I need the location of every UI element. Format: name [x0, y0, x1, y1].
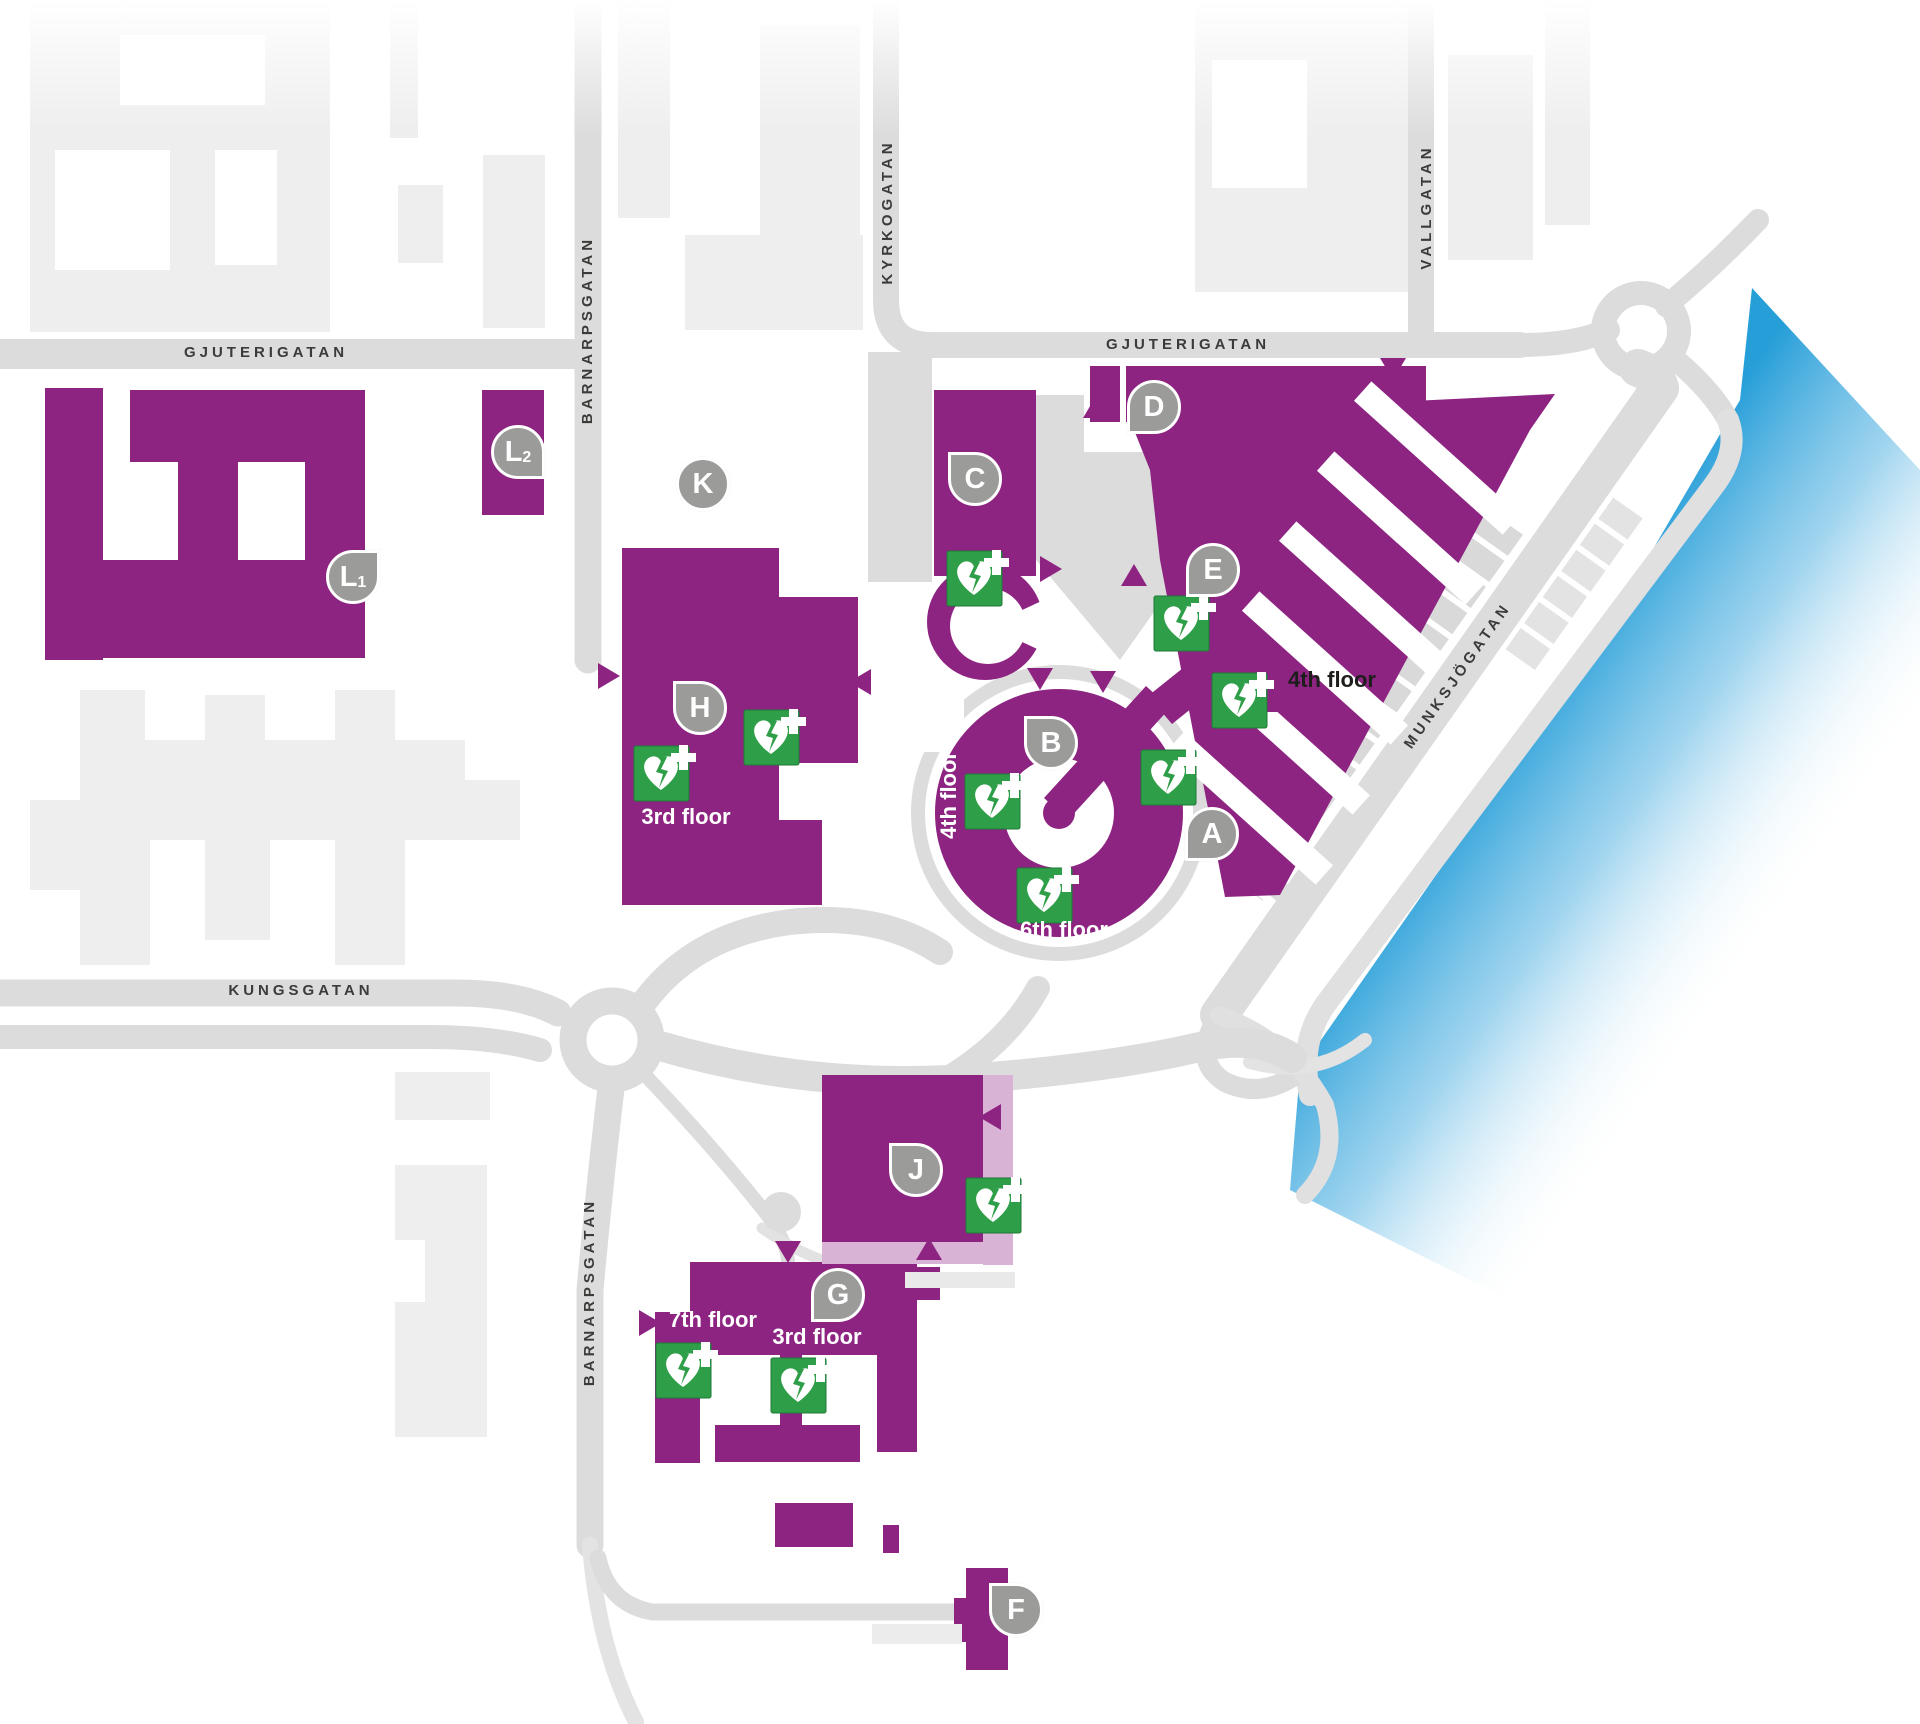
badge-building-b[interactable]: B [1024, 716, 1078, 770]
aed-icon-building-g-west[interactable] [655, 1333, 721, 1399]
badge-building-j[interactable]: J [889, 1143, 943, 1197]
badge-building-a[interactable]: A [1185, 807, 1239, 861]
badge-letter-e: E [1203, 554, 1222, 587]
badge-letter-d: D [1144, 391, 1165, 424]
aed-icon-building-c[interactable] [946, 541, 1012, 607]
street-label-barnarpsgatan-south: BARNARPSGATAN [580, 1142, 600, 1442]
badge-sub-2: 2 [522, 449, 531, 467]
floor-label-4th-east: 4th floor [1288, 667, 1376, 693]
badge-building-g[interactable]: G [811, 1268, 865, 1322]
badge-sub-1: 1 [357, 574, 366, 592]
badge-letter-j: J [908, 1154, 924, 1187]
badge-letter-l1: L [340, 561, 358, 594]
badge-building-l1[interactable]: L1 [326, 550, 380, 604]
map-overlay: GJUTERIGATAN GJUTERIGATAN KUNGSGATAN BAR… [0, 0, 1920, 1724]
street-label-gjuterigatan-west: GJUTERIGATAN [116, 343, 416, 363]
aed-icon-rotunda-west[interactable] [964, 764, 1030, 830]
badge-building-h[interactable]: H [673, 681, 727, 735]
badge-letter-f: F [1007, 1594, 1025, 1627]
street-label-kyrkogatan: KYRKOGATAN [878, 82, 898, 342]
street-label-vallgatan: VALLGATAN [1417, 87, 1437, 327]
badge-area-k[interactable]: K [676, 457, 730, 511]
aed-icon-rotunda-east[interactable] [1140, 740, 1206, 806]
aed-icon-building-g-mid[interactable] [770, 1348, 836, 1414]
badge-letter-c: C [965, 463, 986, 496]
aed-icon-building-j[interactable] [965, 1168, 1031, 1234]
badge-building-c[interactable]: C [948, 452, 1002, 506]
campus-map: GJUTERIGATAN GJUTERIGATAN KUNGSGATAN BAR… [0, 0, 1920, 1724]
aed-icon-building-h-west[interactable] [633, 736, 699, 802]
street-label-kungsgatan: KUNGSGATAN [151, 981, 451, 1001]
badge-letter-k: K [693, 468, 714, 501]
floor-label-6th-rotunda: 6th floor [994, 917, 1134, 943]
badge-letter-l2: L [505, 436, 523, 469]
street-label-munksjogatan: MUNKSJÖGATAN [1364, 547, 1552, 804]
street-label-barnarpsgatan-north: BARNARPSGATAN [578, 180, 598, 480]
floor-label-4th-rotunda: 4th floor [936, 735, 962, 855]
badge-letter-g: G [827, 1279, 850, 1312]
floor-label-3rd-h: 3rd floor [616, 804, 756, 830]
aed-icon-building-h-east[interactable] [743, 700, 809, 766]
badge-letter-b: B [1041, 727, 1062, 760]
badge-building-d[interactable]: D [1127, 380, 1181, 434]
badge-building-e[interactable]: E [1186, 543, 1240, 597]
badge-letter-h: H [690, 692, 711, 725]
badge-building-f[interactable]: F [989, 1583, 1043, 1637]
badge-letter-a: A [1202, 818, 1223, 851]
floor-label-3rd-g: 3rd floor [747, 1324, 887, 1350]
badge-building-l2[interactable]: L2 [491, 425, 545, 479]
aed-icon-rotunda-south[interactable] [1016, 858, 1082, 924]
aed-icon-4th-floor-east[interactable] [1211, 663, 1277, 729]
street-label-gjuterigatan-east: GJUTERIGATAN [1038, 335, 1338, 355]
